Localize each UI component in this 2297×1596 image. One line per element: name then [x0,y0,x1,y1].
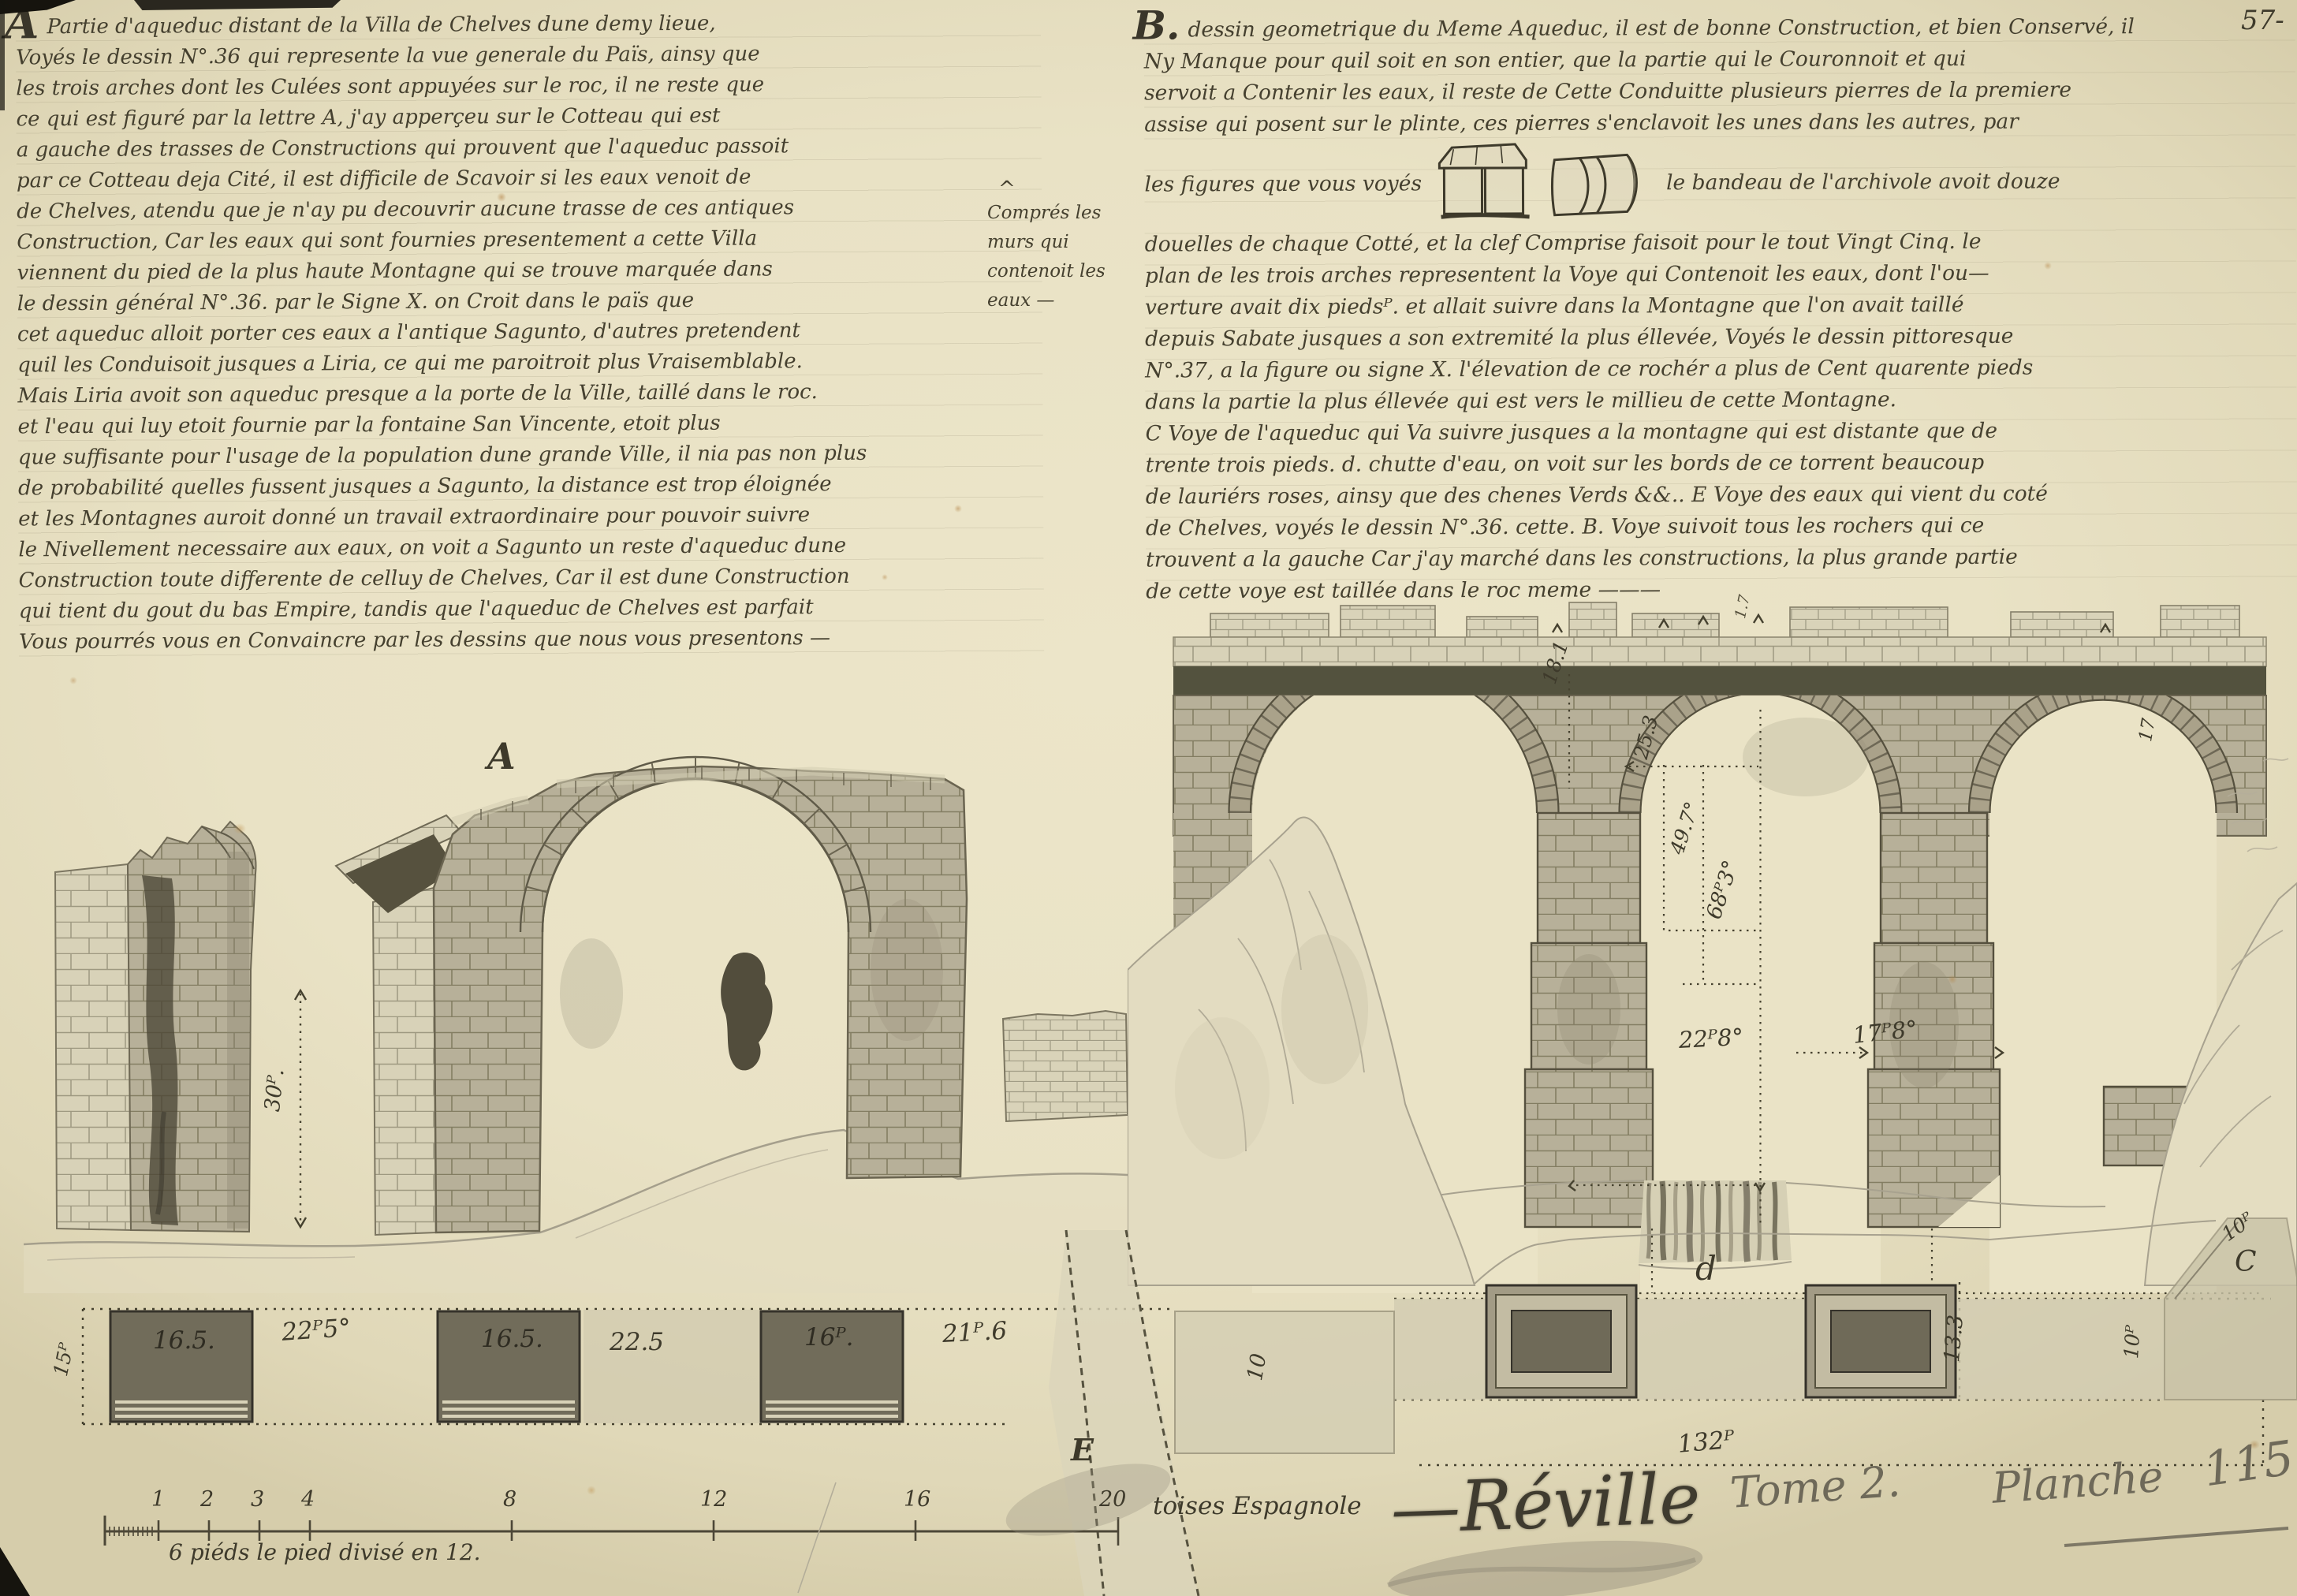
scale-unit-label: toises Espagnole [1153,1492,1362,1520]
interlocking-stones-figure [1437,143,1534,225]
figure-line-prefix: les figures que vous voyés [1144,168,1422,200]
ruin-elevation-sketch-a [24,733,1128,1293]
dimension-17: 17 [2135,717,2160,743]
plan-dimension-13-3: 13.3 [1940,1314,1968,1363]
paragraph-b-lines-before: dessin geometrique du Meme Aqueduc, il e… [1144,10,2296,140]
dimension-30p: 30ᴾ. [260,1068,289,1113]
margin-note-lines: Comprés lesmurs quicontenoit leseaux — [987,199,1169,315]
plan-pier3-label: 16ᴾ. [804,1323,853,1352]
figure-line-suffix: le bandeau de l'archivole avoit douze [1666,166,2060,199]
paragraph-a: A Partie d'aqueduc distant de la Villa d… [16,7,1044,658]
paragraph-b-lines-after: douelles de chaque Cotté, et la clef Com… [1145,225,2297,607]
scale-tick-2: 2 [200,1487,214,1512]
scale-tick-8: 8 [503,1487,516,1512]
plan-gap1-label: 22ᴾ5° [281,1314,352,1347]
foxing-stain [69,677,77,684]
scale-tick-16: 16 [904,1487,930,1512]
plan-pier2-label: 16.5. [481,1325,543,1353]
plan-dimension-10p-vertical: 10ᴾ [2120,1325,2145,1359]
page-number: 57- [2241,5,2284,36]
initial-letter-b: B. [1133,8,1180,43]
curved-voussoir-figure [1549,150,1650,216]
scale-caption: 6 piéds le pied divisé en 12. [169,1539,481,1565]
plan-label-e: E [1071,1432,1094,1467]
scale-tick-4: 4 [301,1487,315,1512]
signature: —Réville [1389,1457,1702,1549]
caret-mark: ^ [998,175,1016,204]
plan-gap2-label: 22.5 [610,1328,664,1356]
scale-tick-12: 12 [700,1487,727,1512]
scale-tick-3: 3 [251,1487,264,1512]
manuscript-page: A Partie d'aqueduc distant de la Villa d… [0,0,2297,1596]
plan-dimension-132: 132ᴾ [1676,1426,1736,1459]
paragraph-b: B. dessin geometrique du Meme Aqueduc, i… [1144,10,2297,607]
initial-letter-a: A [5,6,39,40]
inline-figures-row: les figures que vous voyés le bandeau de… [1144,136,2295,229]
plan-label-c: C [2235,1246,2257,1278]
page-edge-artifact [134,0,341,10]
drawing-a-label: A [487,735,516,777]
paragraph-a-lines: Partie d'aqueduc distant de la Villa de … [16,7,1044,658]
aqueduct-elevation-sketch-b [1128,599,2297,1309]
plan-pier1-label: 16.5. [153,1326,215,1355]
waterfall-label-d: d [1695,1249,1717,1288]
plan-dimension-10: 10 [1243,1352,1271,1382]
scale-tick-1: 1 [151,1487,165,1512]
dimension-22-8: 22ᴾ8° [1678,1024,1744,1053]
plan-gap3-label: 21ᴾ.6 [942,1317,1008,1348]
scale-tick-20: 20 [1099,1487,1126,1512]
margin-note: ^ Comprés lesmurs quicontenoit leseaux — [987,199,1169,315]
